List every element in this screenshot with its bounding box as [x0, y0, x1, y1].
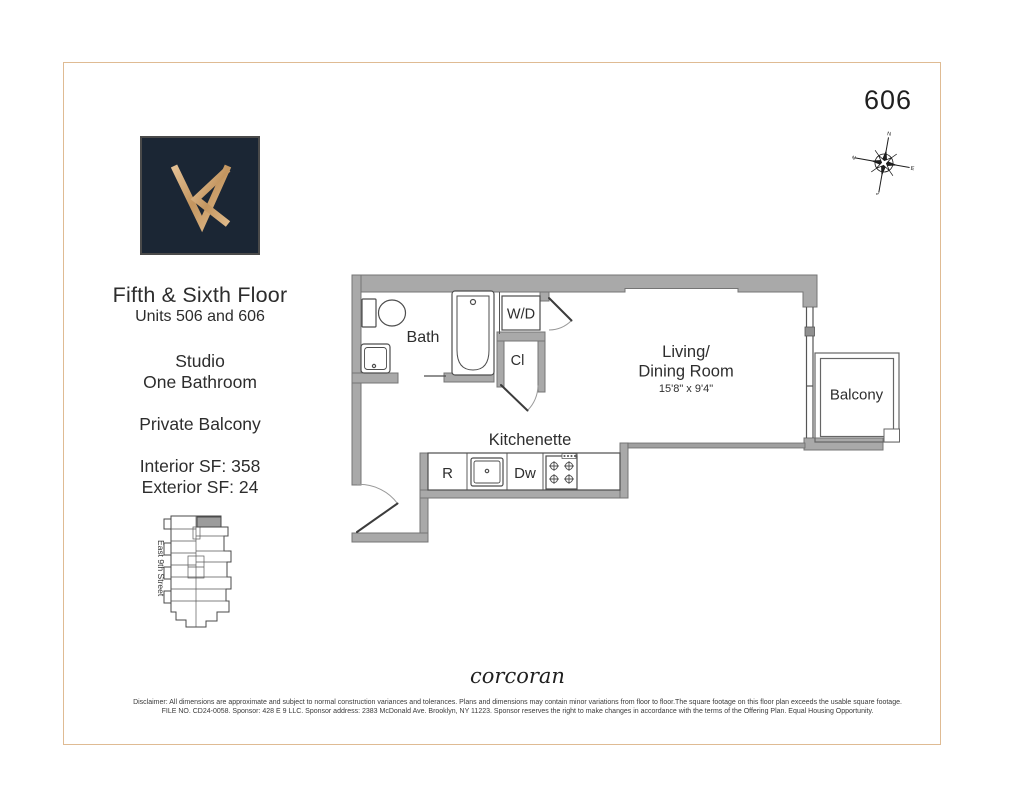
disclaimer: Disclaimer: All dimensions are approxima…: [65, 699, 970, 716]
units-subtitle: Units 506 and 606: [70, 307, 330, 327]
living-room-dimensions: 15'8" x 9'4": [659, 383, 713, 395]
living-half-wall: [628, 443, 805, 448]
bath-count: One Bathroom: [70, 372, 330, 393]
dishwasher-label: Dw: [514, 465, 536, 482]
disclaimer-line-1: Disclaimer: All dimensions are approxima…: [65, 699, 970, 708]
corcoran-logo: corcoran: [0, 664, 1035, 688]
street-label: East 9th Street: [156, 540, 166, 597]
living-room-label-line1: Living/: [662, 343, 710, 361]
interior-sf: Interior SF: 358: [70, 456, 330, 477]
feature-line: Private Balcony: [70, 414, 330, 435]
floor-plan-sheet: 606 N S E W: [0, 0, 1035, 800]
info-panel: Fifth & Sixth Floor Units 506 and 606 St…: [70, 283, 330, 498]
disclaimer-line-2: FILE NO. CD24-0058. Sponsor: 428 E 9 LLC…: [65, 708, 970, 717]
brand-logo-icon: [140, 136, 260, 255]
floor-title: Fifth & Sixth Floor: [70, 283, 330, 307]
balcony-label: Balcony: [830, 387, 884, 404]
kitchenette-label: Kitchenette: [489, 431, 572, 449]
unit-type: Studio: [70, 351, 330, 372]
floor-plan-drawing: Bath W/D Cl Living/ Dining Room 15'8" x …: [340, 255, 955, 565]
key-plan: East 9th Street: [138, 503, 246, 643]
unit-number: 606: [848, 85, 928, 116]
compass-east-label: E: [910, 166, 915, 173]
toilet-bowl: [379, 300, 406, 326]
balcony-door-wall: [805, 307, 815, 438]
compass-west-label: W: [852, 155, 857, 162]
compass-north-label: N: [887, 131, 892, 138]
bath-label: Bath: [407, 329, 440, 346]
refrigerator-label: R: [442, 465, 453, 482]
toilet-tank: [362, 299, 376, 327]
compass-south-label: S: [875, 193, 880, 195]
compass-rose-icon: N S E W: [852, 131, 916, 195]
washer-dryer-label: W/D: [507, 307, 535, 323]
exterior-sf: Exterior SF: 24: [70, 477, 330, 498]
stove: [546, 456, 577, 489]
living-room-label-line2: Dining Room: [638, 363, 733, 381]
closet-label: Cl: [511, 353, 525, 369]
walls: [352, 275, 883, 542]
key-plan-unit-highlight: [197, 517, 221, 527]
